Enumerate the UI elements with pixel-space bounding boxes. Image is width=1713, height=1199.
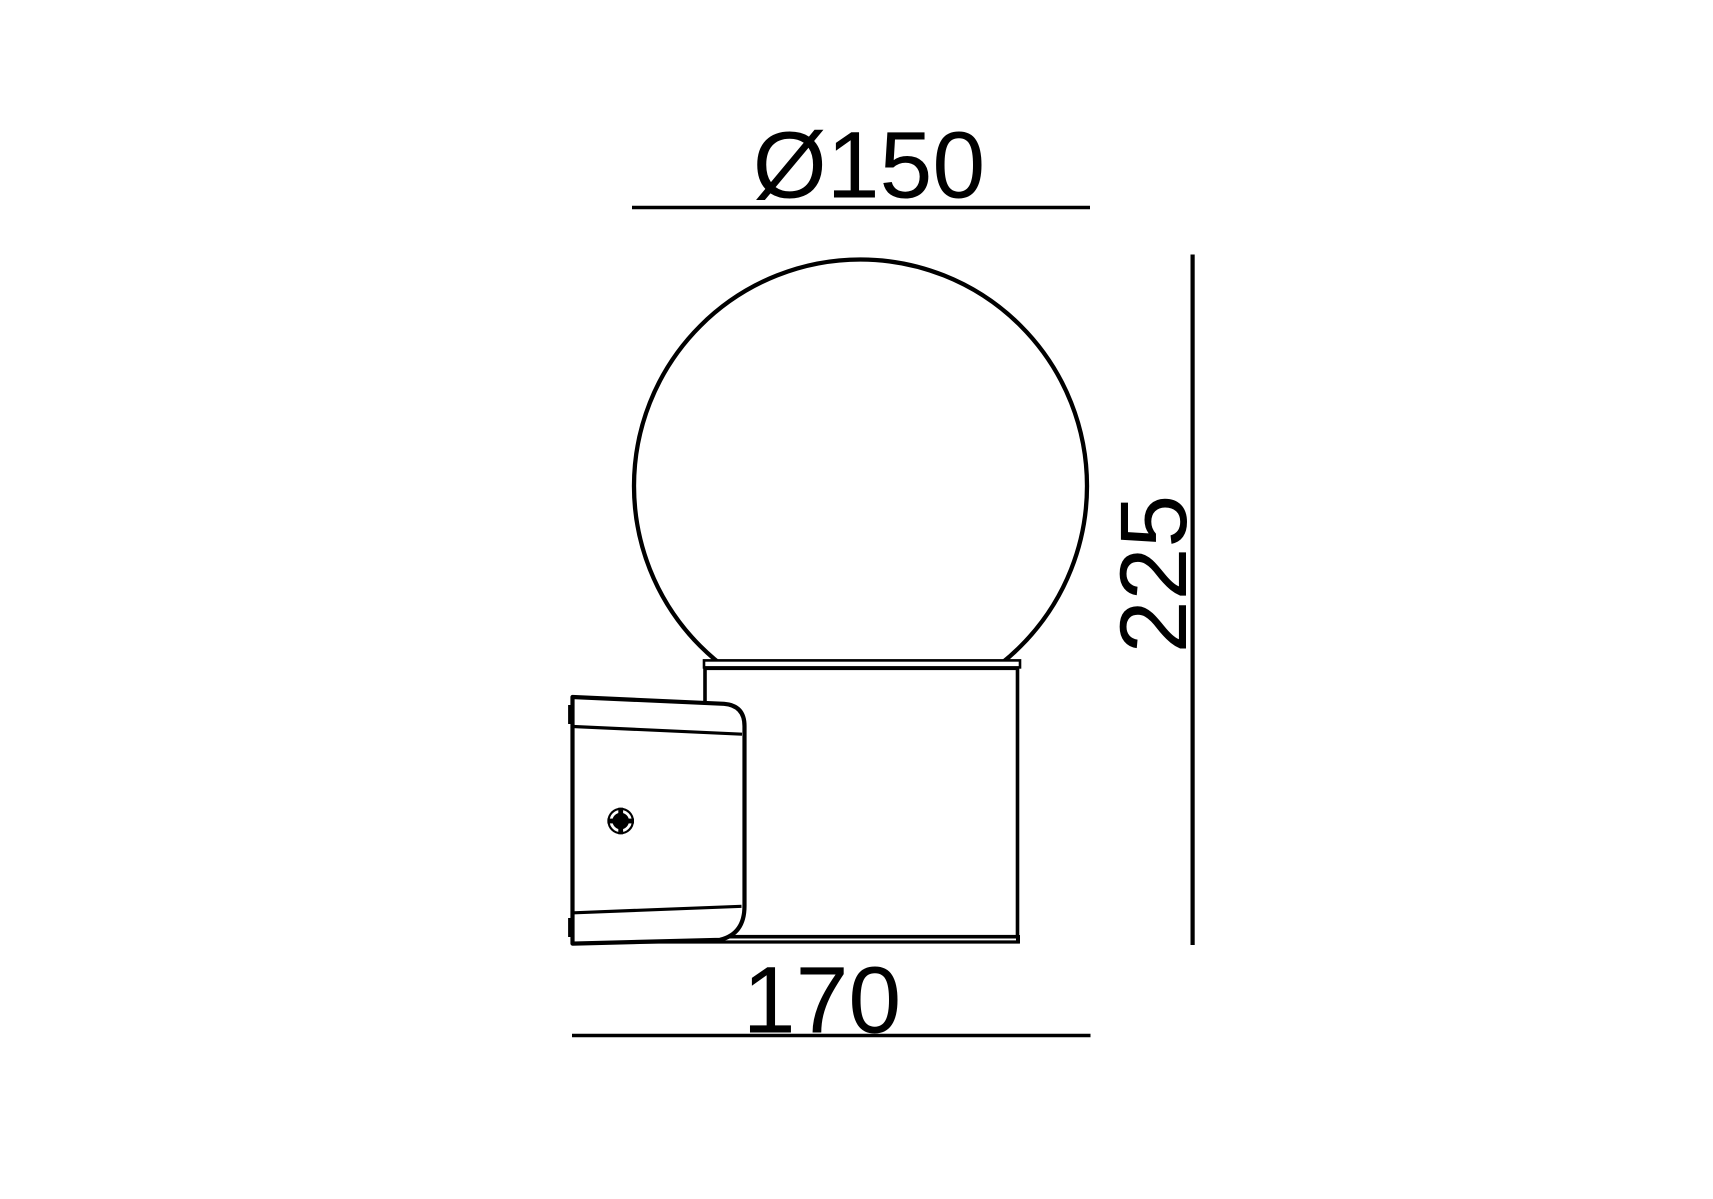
svg-text:225: 225 (1101, 495, 1207, 654)
svg-text:Ø150: Ø150 (753, 113, 985, 219)
svg-text:170: 170 (743, 948, 902, 1054)
